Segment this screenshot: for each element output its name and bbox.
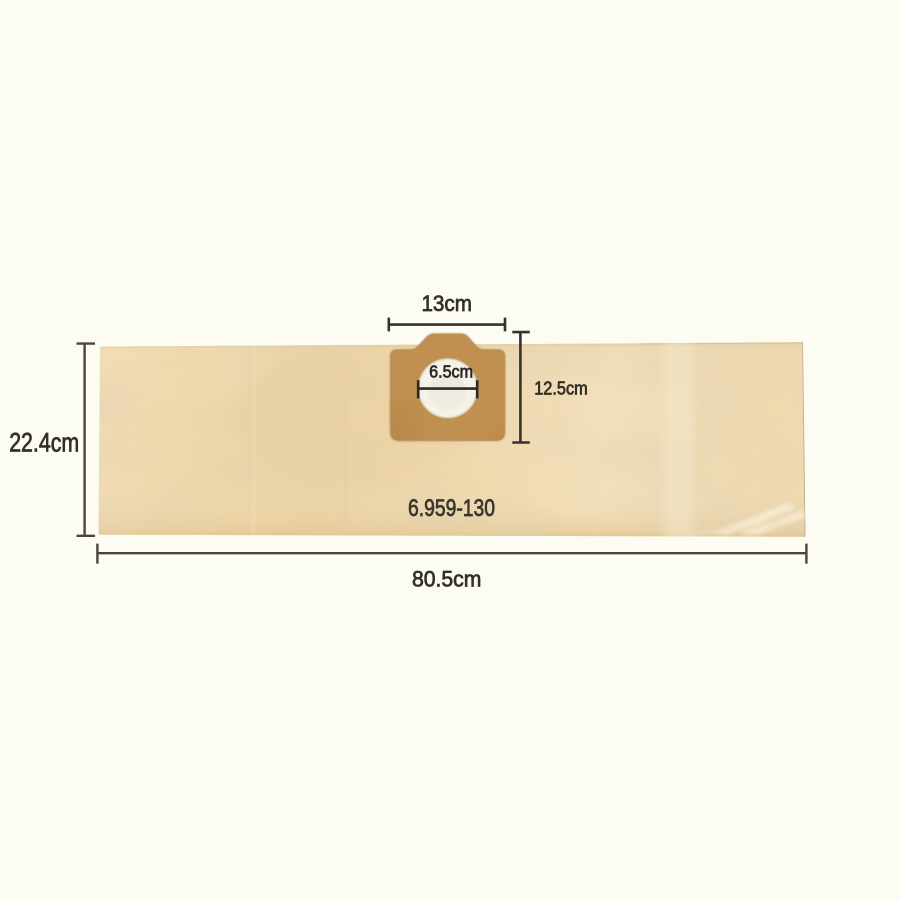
svg-text:12.5cm: 12.5cm <box>534 377 588 398</box>
svg-text:13cm: 13cm <box>421 291 472 316</box>
svg-text:6.959-130: 6.959-130 <box>408 495 495 522</box>
svg-text:22.4cm: 22.4cm <box>9 428 79 458</box>
svg-text:80.5cm: 80.5cm <box>412 566 482 591</box>
svg-text:6.5cm: 6.5cm <box>429 361 473 381</box>
